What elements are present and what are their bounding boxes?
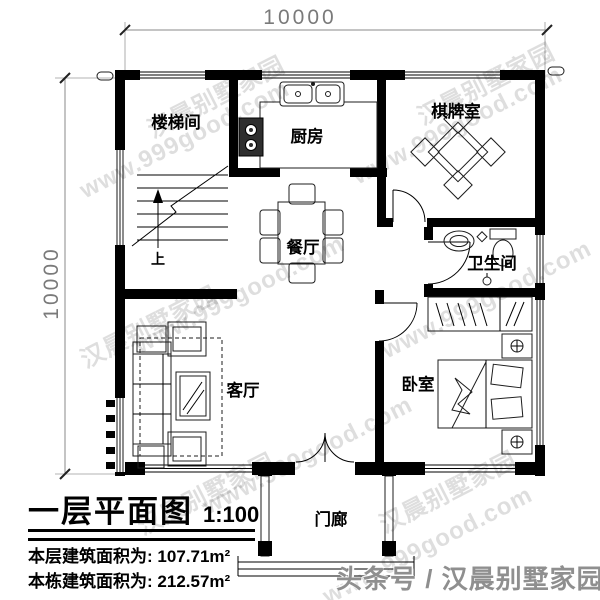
dimension-left: 10000 [40,246,63,319]
total-area-value: 212.57m² [157,572,230,591]
floor-area-label: 本层建筑面积为: [28,547,153,566]
axis-marker-icon [548,67,564,75]
title-underline [28,529,255,541]
axis-marker-icon [97,72,113,80]
floor-area-line: 本层建筑面积为: 107.71m² [28,542,230,567]
plan-scale: 1:100 [203,502,259,528]
floor-plan-page: 10000 10000 [0,0,600,600]
room-label-bedroom: 卧室 [402,374,435,394]
footer-watermark: 头条号 / 汉晨别墅家园 [336,559,600,596]
stove [239,118,263,156]
total-area-label: 本栋建筑面积为: [28,572,153,591]
bed [438,360,532,428]
stairs-up-arrow-icon [153,189,163,203]
stairs-up-label: 上 [151,251,165,267]
kitchen-fixtures [239,82,377,168]
room-label-stairwell: 楼梯间 [151,112,201,132]
stairs: 上 [132,166,228,267]
kitchen-sink [280,82,344,106]
nightstand [502,334,532,358]
total-area-line: 本栋建筑面积为: 212.57m² [28,567,230,592]
chess-room-door [393,190,425,222]
dimension-top: 10000 [263,6,336,29]
bedroom-furniture [428,297,532,454]
room-label-living: 客厅 [226,380,261,400]
room-label-porch: 门廊 [315,509,348,529]
room-label-chess: 棋牌室 [431,101,481,121]
floor-drain-icon [483,273,491,285]
room-label-dining: 餐厅 [287,237,321,257]
armchair [168,322,206,356]
coffee-table [176,372,210,420]
dining-table [260,184,343,283]
wardrobe [428,297,532,331]
armchair [168,432,206,466]
living-furniture [133,322,222,468]
title-block: 一层平面图 1:100 [28,486,259,531]
sofa [133,342,171,456]
room-label-kitchen: 厨房 [291,126,324,146]
corner-table [137,326,166,352]
bedroom-door [379,303,417,341]
bathroom-sink [444,231,487,251]
entry-double-door [296,433,354,462]
floor-area-value: 107.71m² [157,547,230,566]
plan-title: 一层平面图 [28,486,193,531]
room-label-bathroom: 卫生间 [467,253,517,273]
nightstand [502,430,532,454]
